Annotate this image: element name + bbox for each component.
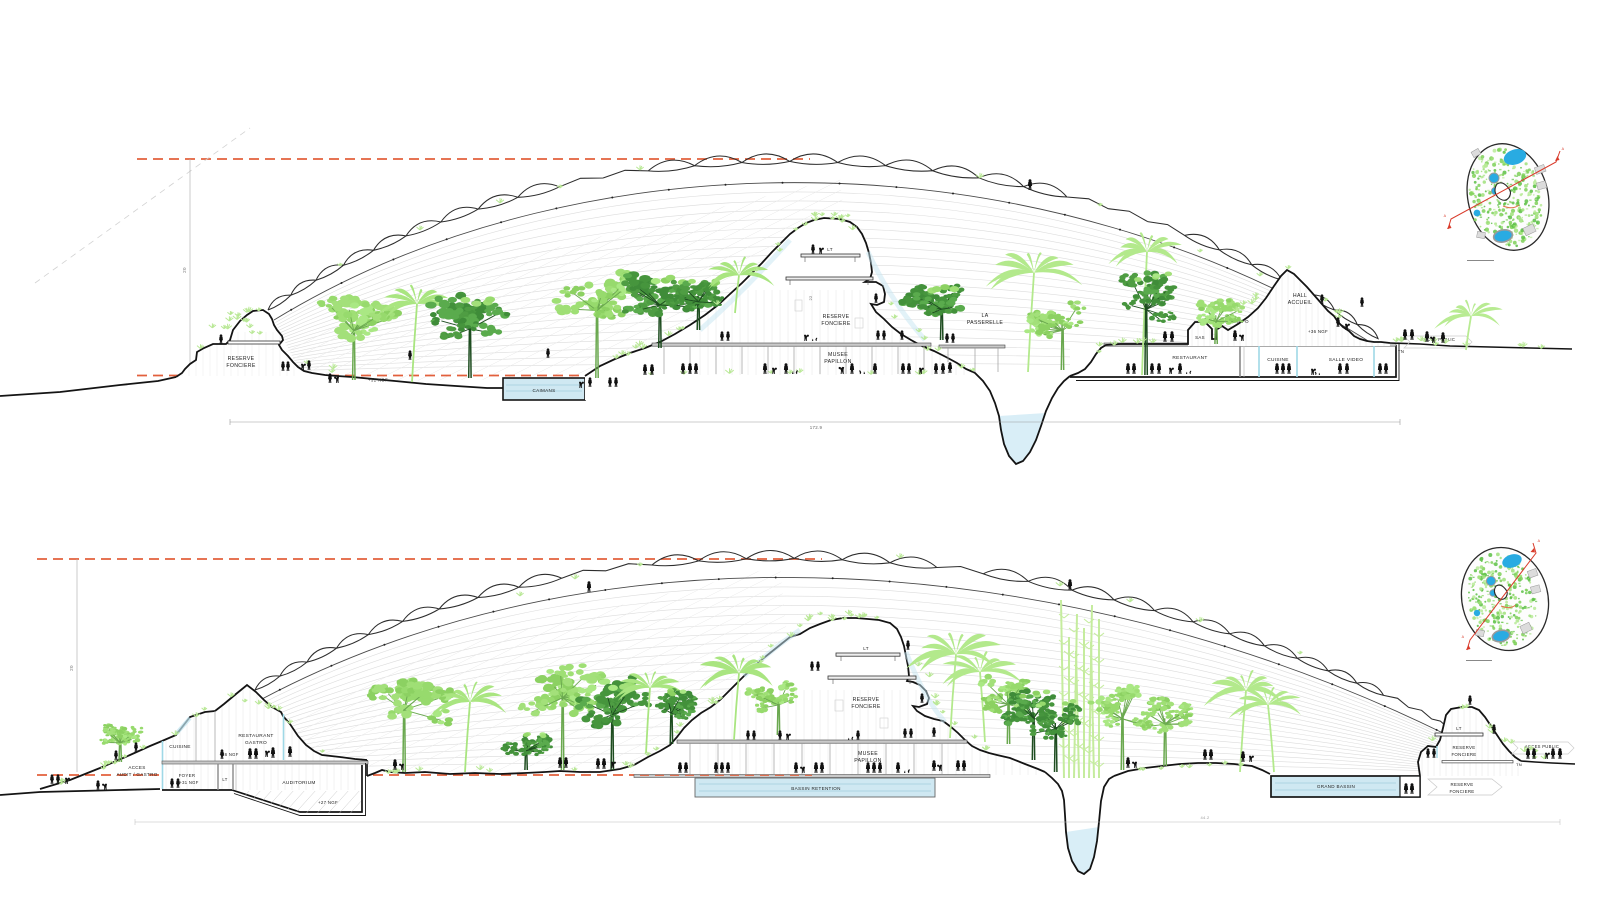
svg-text:AUDIT / GASTRO: AUDIT / GASTRO <box>116 772 157 777</box>
svg-text:A: A <box>1562 147 1565 151</box>
svg-text:SALLE VIDEO: SALLE VIDEO <box>1329 357 1364 363</box>
svg-text:ACCUEIL: ACCUEIL <box>1288 300 1313 306</box>
svg-text:A: A <box>1462 635 1465 639</box>
svg-text:TN: TN <box>1398 349 1404 354</box>
svg-text:+36 NGF: +36 NGF <box>1308 329 1328 334</box>
svg-text:+31 NGF: +31 NGF <box>368 378 388 383</box>
svg-text:FONCIERE: FONCIERE <box>821 321 850 327</box>
svg-text:PASSERELLE: PASSERELLE <box>967 320 1004 326</box>
svg-text:44.2: 44.2 <box>1201 815 1210 820</box>
svg-text:GASTRO: GASTRO <box>245 740 267 746</box>
svg-text:MUSEE: MUSEE <box>858 751 878 757</box>
svg-text:LT: LT <box>222 777 227 782</box>
svg-text:BASSIN RETENTION: BASSIN RETENTION <box>791 786 840 791</box>
svg-text:A: A <box>1444 214 1447 218</box>
svg-text:LT: LT <box>827 247 833 252</box>
svg-text:FONCIERE: FONCIERE <box>226 363 255 369</box>
svg-text:RESERVE: RESERVE <box>853 697 880 703</box>
svg-text:CUISINE: CUISINE <box>169 744 191 750</box>
svg-text:RESTAURANT: RESTAURANT <box>238 733 273 739</box>
svg-text:20: 20 <box>69 665 74 671</box>
svg-text:RESERVE: RESERVE <box>228 356 255 362</box>
svg-text:RESTAURANT: RESTAURANT <box>1172 355 1207 361</box>
svg-text:PAPILLON: PAPILLON <box>824 359 851 365</box>
svg-text:HALL: HALL <box>1293 293 1307 299</box>
svg-text:ACCES: ACCES <box>128 765 145 770</box>
svg-text:RESERVE: RESERVE <box>1452 745 1475 750</box>
svg-text:CAIMANS: CAIMANS <box>532 388 555 393</box>
svg-text:CUISINE: CUISINE <box>1267 357 1289 363</box>
svg-text:TN: TN <box>1516 762 1522 767</box>
svg-text:RESERVE: RESERVE <box>823 314 850 320</box>
svg-text:LA: LA <box>982 313 989 319</box>
svg-text:FOYER: FOYER <box>179 773 196 778</box>
svg-text:LT: LT <box>863 646 869 651</box>
svg-text:20: 20 <box>182 267 187 273</box>
svg-text:22: 22 <box>808 295 813 301</box>
svg-text:FONCIERE: FONCIERE <box>1451 752 1476 757</box>
svg-text:FONCIERE: FONCIERE <box>1449 789 1474 794</box>
svg-text:MUSEE: MUSEE <box>828 352 848 358</box>
svg-text:SAS: SAS <box>1195 335 1205 340</box>
svg-text:+27 NGF: +27 NGF <box>318 800 338 805</box>
svg-text:172.9: 172.9 <box>810 425 823 430</box>
svg-text:+31 NGF: +31 NGF <box>179 780 198 785</box>
svg-text:LT: LT <box>1456 726 1461 731</box>
svg-text:AUDITORIUM: AUDITORIUM <box>282 780 315 786</box>
svg-text:FONCIERE: FONCIERE <box>851 704 880 710</box>
svg-text:A: A <box>1538 539 1541 543</box>
svg-text:GRAND BASSIN: GRAND BASSIN <box>1317 784 1355 789</box>
svg-text:RESERVE: RESERVE <box>1450 782 1473 787</box>
